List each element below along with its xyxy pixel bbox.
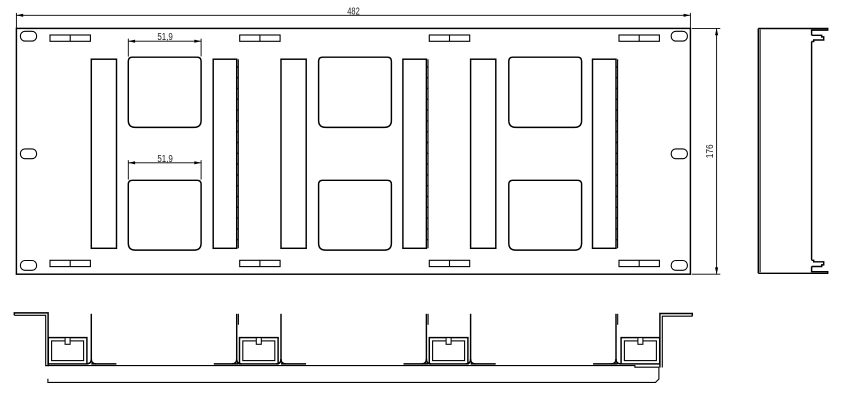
svg-text:51,9: 51,9 — [157, 154, 173, 165]
svg-text:176: 176 — [705, 144, 716, 158]
svg-text:51,9: 51,9 — [157, 32, 173, 43]
svg-text:482: 482 — [347, 7, 360, 18]
